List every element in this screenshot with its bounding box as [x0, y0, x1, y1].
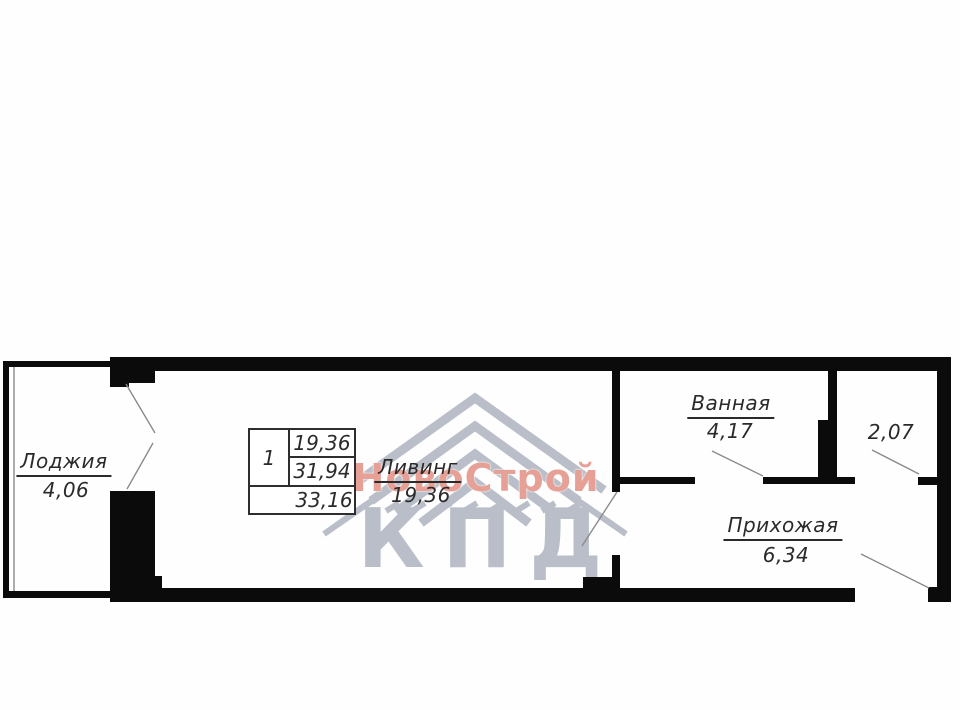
wall-loggia-top: [3, 361, 110, 367]
door-line-loggia-upper: [126, 384, 155, 433]
watermark-logo-text: КПД: [358, 499, 621, 581]
door-line-storeroom: [872, 450, 919, 474]
wall-entry-corner-block: [928, 587, 951, 602]
wall-storeroom-bottom-right: [918, 477, 937, 485]
wall-bottom-exterior: [110, 588, 855, 602]
stamp-total-area: 33,16: [250, 485, 354, 513]
wall-bathroom-right-upper: [828, 371, 837, 420]
door-line-entrance: [861, 554, 929, 588]
room-area-hallway: 6,34: [763, 543, 810, 567]
room-name-bathroom: Ванная: [687, 391, 774, 419]
wall-living-hall-upper: [612, 371, 620, 492]
room-area-living: 19,36: [391, 483, 451, 507]
door-line-loggia-lower: [127, 443, 153, 489]
floor-plan: КПД НовоСтрой Лоджия 4,06 Ливинг 19: [0, 0, 960, 710]
wall-loggia-pier-top: [110, 357, 155, 383]
room-label-hallway: Прихожая: [723, 513, 842, 537]
wall-living-hall-step: [583, 577, 612, 588]
wall-loggia-pillar-step: [151, 576, 162, 588]
wall-loggia-bottom: [3, 591, 110, 598]
stamp-living-area: 19,36: [290, 430, 354, 458]
room-label-bathroom: Ванная: [687, 391, 774, 415]
door-line-bathroom: [712, 451, 763, 476]
room-area-bathroom: 4,17: [707, 419, 754, 443]
room-label-living: Ливинг: [374, 455, 461, 479]
wall-bathroom-bottom-right: [763, 477, 855, 484]
stamp-apartment-area: 31,94: [290, 458, 354, 486]
room-name-living: Ливинг: [374, 455, 461, 483]
room-name-loggia: Лоджия: [16, 449, 111, 477]
wall-bathroom-bottom-left: [612, 477, 695, 484]
wall-right-exterior: [937, 357, 951, 602]
wall-loggia-pier-step: [110, 383, 129, 387]
wall-living-hall-lower: [612, 555, 620, 588]
room-area-loggia: 4,06: [43, 478, 90, 502]
room-name-hallway: Прихожая: [723, 513, 842, 541]
area-stamp-table: 1 19,36 31,94 33,16: [248, 428, 356, 515]
room-area-storeroom: 2,07: [868, 420, 915, 444]
wall-bathroom-right-pillar: [818, 420, 837, 477]
wall-loggia-pillar: [110, 491, 155, 588]
stamp-rooms-count: 1: [250, 430, 290, 485]
wall-loggia-left: [3, 361, 9, 598]
wall-top-exterior: [110, 357, 951, 371]
room-label-loggia: Лоджия: [16, 449, 111, 473]
